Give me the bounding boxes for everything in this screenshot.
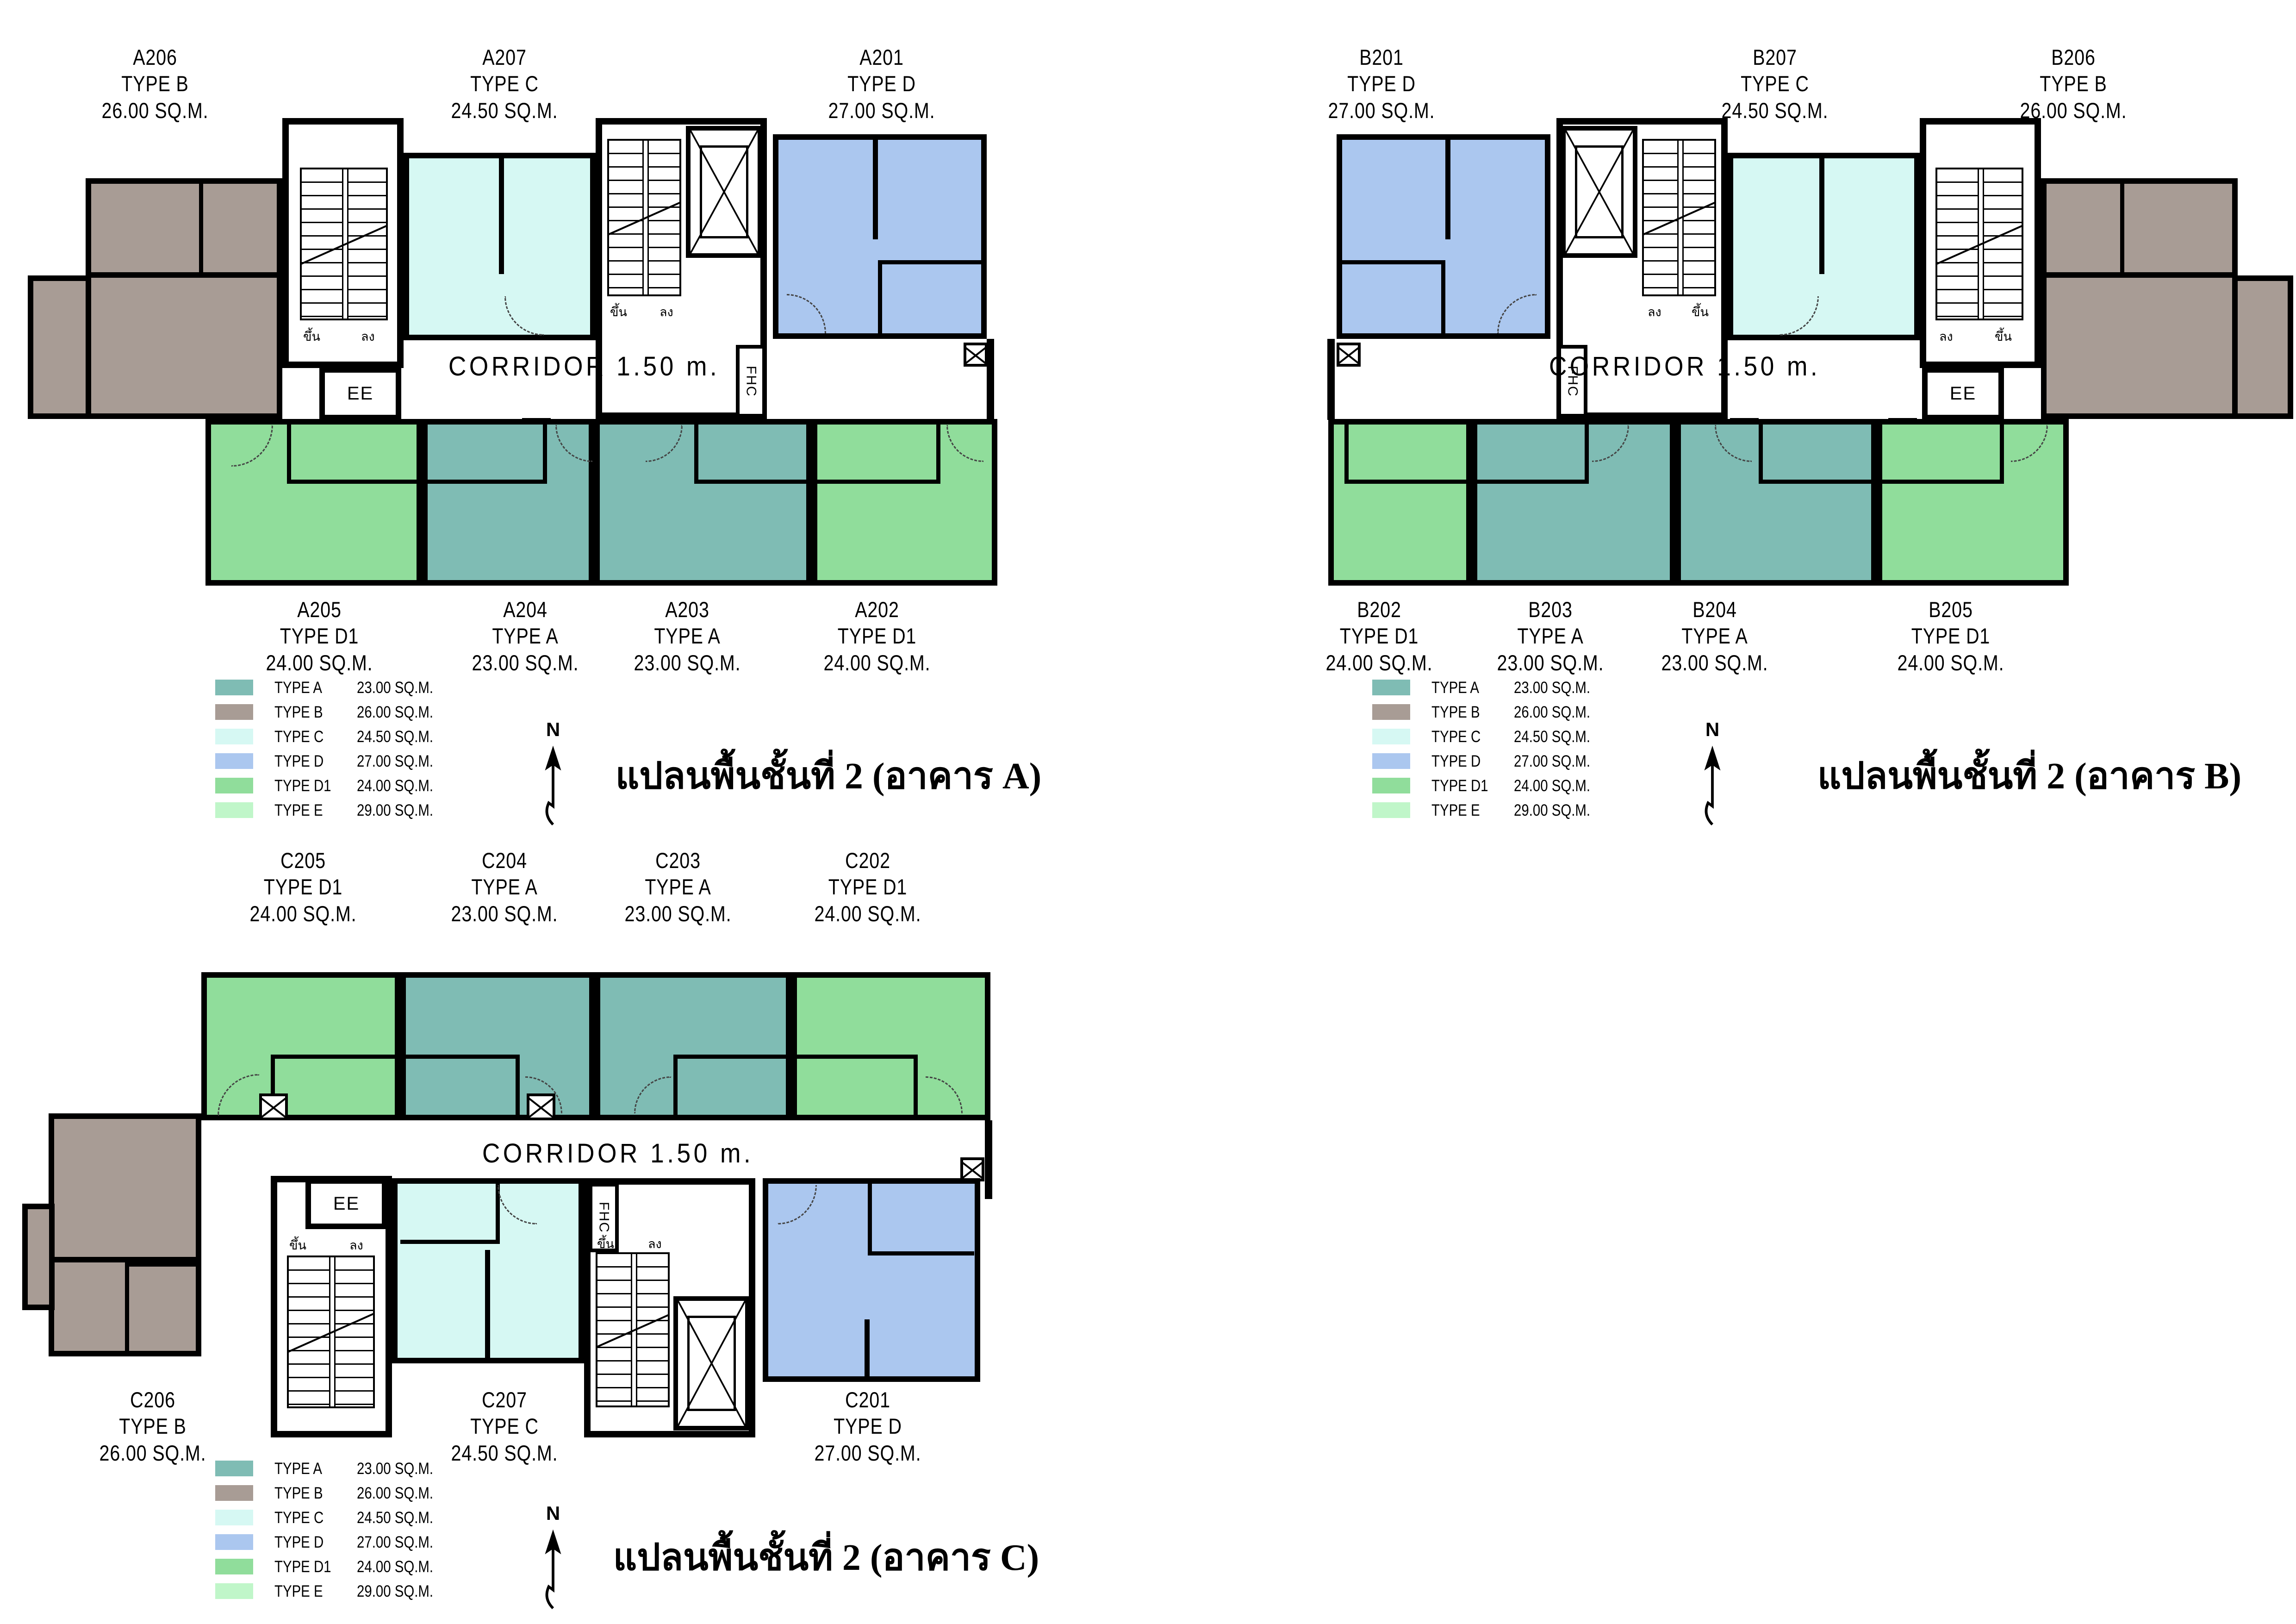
- elevator-car: [1575, 145, 1623, 238]
- unit-type: TYPE D: [796, 70, 967, 97]
- bathroom-A205: [287, 424, 418, 484]
- legend-swatch: [1372, 802, 1410, 818]
- bathroom-A201: [878, 260, 981, 333]
- unit-label: A202 TYPE D1 24.00 SQ.M.: [791, 596, 963, 676]
- bathroom-B202: [1344, 424, 1468, 484]
- corridor-label: CORRIDOR 1.50 m.: [448, 351, 720, 382]
- unit-type: TYPE D: [782, 1413, 953, 1439]
- legend-type: TYPE C: [274, 728, 360, 746]
- legend-area: 29.00 SQ.M.: [357, 801, 473, 820]
- legend-area: 24.50 SQ.M.: [357, 728, 473, 746]
- unit-number: C202: [782, 847, 953, 874]
- legend-area: 24.50 SQ.M.: [1514, 728, 1630, 746]
- elevator-ee-box: EE: [305, 1178, 387, 1229]
- legend-area: 29.00 SQ.M.: [1514, 801, 1630, 820]
- unit-type: TYPE D1: [782, 874, 953, 900]
- unit-number: C207: [419, 1387, 590, 1413]
- legend-swatch: [215, 729, 253, 744]
- unit-label: A206 TYPE B 26.00 SQ.M.: [69, 44, 241, 124]
- bathroom-C205: [271, 1055, 397, 1115]
- legend-area: 26.00 SQ.M.: [1514, 703, 1630, 722]
- unit-room-A206-wing: [28, 275, 91, 419]
- unit-type: TYPE C: [1689, 70, 1860, 97]
- legend-type: TYPE D1: [274, 1558, 360, 1576]
- legend-type: TYPE C: [274, 1509, 360, 1527]
- unit-label: A204 TYPE A 23.00 SQ.M.: [440, 596, 611, 676]
- unit-area: 27.00 SQ.M.: [782, 1440, 953, 1466]
- bathroom-C207: [400, 1184, 500, 1244]
- legend-type: TYPE D: [274, 1533, 360, 1552]
- unit-area: 24.00 SQ.M.: [218, 900, 389, 927]
- floor-plan-sheet: { "shared": { "corridor_label": "CORRIDO…: [0, 0, 2296, 1624]
- legend-swatch: [215, 1583, 253, 1599]
- unit-label: B206 TYPE B 26.00 SQ.M.: [1988, 44, 2159, 124]
- bathroom-A204: [426, 424, 547, 484]
- fire-hose-cabinet: FHC: [736, 345, 766, 418]
- stair-down-label: ลง: [349, 1235, 363, 1255]
- unit-area: 26.00 SQ.M.: [67, 1440, 238, 1466]
- legend-type: TYPE D1: [274, 777, 360, 795]
- stair-up-label: ขึ้น: [303, 326, 320, 346]
- north-arrow-icon: [1696, 742, 1729, 830]
- staircase: [1642, 139, 1716, 296]
- bathroom-C206: [125, 1262, 199, 1353]
- stair-up-label: ขึ้น: [289, 1235, 306, 1255]
- legend-area: 23.00 SQ.M.: [1514, 679, 1630, 697]
- bathroom-A203: [694, 424, 808, 484]
- unit-label: C207 TYPE C 24.50 SQ.M.: [419, 1387, 590, 1466]
- unit-type: TYPE A: [1465, 623, 1636, 649]
- elevator-label: EE: [1950, 383, 1976, 404]
- north-arrow-icon: [537, 1525, 569, 1613]
- bathroom-B203: [1475, 424, 1589, 484]
- legend-swatch: [215, 802, 253, 818]
- legend-swatch: [1372, 729, 1410, 744]
- elevator-shaft: [673, 1296, 750, 1430]
- unit-area: 24.00 SQ.M.: [782, 900, 953, 927]
- unit-label: B207 TYPE C 24.50 SQ.M.: [1689, 44, 1860, 124]
- unit-area: 23.00 SQ.M.: [602, 650, 773, 676]
- unit-type: TYPE B: [67, 1413, 238, 1439]
- north-label: N: [1694, 718, 1731, 741]
- corridor-end-wall: [985, 1120, 992, 1199]
- unit-area: 27.00 SQ.M.: [796, 97, 967, 124]
- unit-number: C206: [67, 1387, 238, 1413]
- elevator-ee-box: EE: [319, 367, 401, 420]
- legend-type: TYPE A: [274, 1460, 360, 1478]
- legend-swatch: [215, 778, 253, 793]
- north-label: N: [535, 1502, 572, 1524]
- legend-area: 29.00 SQ.M.: [357, 1582, 473, 1601]
- partition-wall: [53, 1257, 197, 1262]
- unit-label: C201 TYPE D 27.00 SQ.M.: [782, 1387, 953, 1466]
- unit-number: B201: [1296, 44, 1467, 70]
- unit-type: TYPE B: [1988, 70, 2159, 97]
- unit-number: C201: [782, 1387, 953, 1413]
- stair-down-label: ลง: [1939, 326, 1953, 346]
- bathroom-C201: [868, 1184, 974, 1255]
- service-shaft: [527, 1093, 555, 1120]
- corridor-label: CORRIDOR 1.50 m.: [482, 1138, 753, 1169]
- legend-area: 26.00 SQ.M.: [357, 703, 473, 722]
- partition-wall: [499, 158, 504, 274]
- unit-type: TYPE C: [419, 70, 590, 97]
- bathroom-B201: [1342, 260, 1445, 333]
- unit-area: 23.00 SQ.M.: [1629, 650, 1800, 676]
- unit-type: TYPE D1: [791, 623, 963, 649]
- unit-number: C205: [218, 847, 389, 874]
- elevator-shaft: [1561, 126, 1637, 258]
- unit-number: C203: [592, 847, 764, 874]
- legend-swatch: [215, 1510, 253, 1525]
- legend-type: TYPE B: [1431, 703, 1517, 722]
- staircase: [287, 1255, 375, 1408]
- unit-type: TYPE A: [602, 623, 773, 649]
- unit-area: 23.00 SQ.M.: [419, 900, 590, 927]
- unit-label: C205 TYPE D1 24.00 SQ.M.: [218, 847, 389, 927]
- service-shaft: [964, 343, 988, 367]
- partition-wall: [485, 1250, 490, 1359]
- elevator-ee-box: EE: [1922, 367, 2004, 420]
- legend-area: 24.50 SQ.M.: [357, 1509, 473, 1527]
- unit-area: 24.00 SQ.M.: [234, 650, 405, 676]
- legend-type: TYPE E: [274, 1582, 360, 1601]
- legend-area: 27.00 SQ.M.: [1514, 752, 1630, 771]
- stair-down-label: ลง: [1648, 302, 1661, 322]
- fhc-label: FHC: [743, 366, 759, 397]
- corridor-label: CORRIDOR 1.50 m.: [1549, 351, 1820, 382]
- north-arrow: N: [535, 718, 572, 832]
- unit-label: A201 TYPE D 27.00 SQ.M.: [796, 44, 967, 124]
- legend-swatch: [215, 680, 253, 695]
- bathroom-A202: [815, 424, 940, 484]
- legend-type: TYPE D1: [1431, 777, 1517, 795]
- stair-up-label: ขึ้น: [597, 1234, 614, 1254]
- legend-type: TYPE E: [274, 801, 360, 820]
- unit-number: A205: [234, 596, 405, 623]
- bathroom-C203: [673, 1055, 788, 1115]
- unit-area: 23.00 SQ.M.: [1465, 650, 1636, 676]
- legend-area: 23.00 SQ.M.: [357, 679, 473, 697]
- unit-number: B205: [1865, 596, 2036, 623]
- unit-label: A203 TYPE A 23.00 SQ.M.: [602, 596, 773, 676]
- stair-down-label: ลง: [660, 302, 673, 322]
- legend-area: 23.00 SQ.M.: [357, 1460, 473, 1478]
- bathroom-B206: [2045, 183, 2124, 278]
- north-arrow: N: [535, 1502, 572, 1616]
- bathroom-B205: [1880, 424, 2004, 484]
- staircase: [1935, 168, 2023, 320]
- unit-label: B205 TYPE D1 24.00 SQ.M.: [1865, 596, 2036, 676]
- unit-area: 23.00 SQ.M.: [440, 650, 611, 676]
- elevator-label: EE: [347, 383, 373, 404]
- unit-area: 24.00 SQ.M.: [791, 650, 963, 676]
- plan-b-caption: แปลนพื้นชั้นที่ 2 (อาคาร B): [1817, 746, 2241, 805]
- bathroom-B204: [1759, 424, 1873, 484]
- unit-type: TYPE D1: [1294, 623, 1465, 649]
- legend-area: 24.00 SQ.M.: [357, 777, 473, 795]
- elevator-shaft: [686, 126, 762, 258]
- stair-up-label: ขึ้น: [1995, 326, 2012, 346]
- bathroom-C204: [404, 1055, 520, 1115]
- bathroom-C202: [795, 1055, 918, 1115]
- unit-number: C204: [419, 847, 590, 874]
- plan-c-caption: แปลนพื้นชั้นที่ 2 (อาคาร C): [613, 1528, 1039, 1587]
- legend-area: 24.00 SQ.M.: [357, 1558, 473, 1576]
- unit-number: A201: [796, 44, 967, 70]
- elevator-label: EE: [333, 1193, 360, 1214]
- unit-label: A205 TYPE D1 24.00 SQ.M.: [234, 596, 405, 676]
- unit-room-B206-wing: [2232, 275, 2293, 419]
- unit-type: TYPE A: [440, 623, 611, 649]
- service-shaft: [259, 1093, 288, 1120]
- unit-type: TYPE D: [1296, 70, 1467, 97]
- unit-label: A207 TYPE C 24.50 SQ.M.: [419, 44, 590, 124]
- legend-swatch: [1372, 704, 1410, 720]
- unit-room-C206-wing: [22, 1204, 55, 1310]
- legend-type: TYPE C: [1431, 728, 1517, 746]
- unit-area: 23.00 SQ.M.: [592, 900, 764, 927]
- unit-label: C202 TYPE D1 24.00 SQ.M.: [782, 847, 953, 927]
- legend-swatch: [215, 1461, 253, 1476]
- unit-type: TYPE D1: [234, 623, 405, 649]
- legend-swatch: [215, 704, 253, 720]
- corridor-end-wall: [1327, 339, 1335, 420]
- unit-number: B202: [1294, 596, 1465, 623]
- unit-number: A202: [791, 596, 963, 623]
- stair-down-label: ลง: [361, 326, 375, 346]
- partition-wall: [865, 1319, 870, 1377]
- legend-swatch: [215, 1534, 253, 1550]
- unit-label: C206 TYPE B 26.00 SQ.M.: [67, 1387, 238, 1466]
- unit-number: B206: [1988, 44, 2159, 70]
- unit-number: A207: [419, 44, 590, 70]
- legend-swatch: [1372, 680, 1410, 695]
- legend-area: 27.00 SQ.M.: [357, 752, 473, 771]
- unit-type: TYPE C: [419, 1413, 590, 1439]
- unit-number: B207: [1689, 44, 1860, 70]
- service-shaft: [1337, 343, 1361, 367]
- unit-number: A204: [440, 596, 611, 623]
- staircase: [300, 168, 388, 320]
- legend-type: TYPE E: [1431, 801, 1517, 820]
- legend-area: 26.00 SQ.M.: [357, 1484, 473, 1503]
- unit-area: 24.50 SQ.M.: [419, 97, 590, 124]
- unit-area: 27.00 SQ.M.: [1296, 97, 1467, 124]
- unit-number: A203: [602, 596, 773, 623]
- legend-type: TYPE B: [274, 703, 360, 722]
- legend-swatch: [215, 1485, 253, 1501]
- unit-type: TYPE A: [592, 874, 764, 900]
- legend-type: TYPE D: [274, 752, 360, 771]
- north-label: N: [535, 718, 572, 741]
- legend-type: TYPE A: [1431, 679, 1517, 697]
- partition-wall: [1819, 158, 1824, 274]
- legend-area: 27.00 SQ.M.: [357, 1533, 473, 1552]
- unit-label: C203 TYPE A 23.00 SQ.M.: [592, 847, 764, 927]
- legend-swatch: [1372, 778, 1410, 793]
- unit-label: B203 TYPE A 23.00 SQ.M.: [1465, 596, 1636, 676]
- corridor-end-wall: [987, 339, 994, 420]
- legend-type: TYPE D: [1431, 752, 1517, 771]
- unit-type: TYPE B: [69, 70, 241, 97]
- legend-swatch: [1372, 753, 1410, 769]
- partition-wall: [873, 140, 878, 239]
- stair-up-label: ขึ้น: [610, 302, 627, 322]
- unit-area: 26.00 SQ.M.: [69, 97, 241, 124]
- legend-type: TYPE A: [274, 679, 360, 697]
- unit-type: TYPE A: [1629, 623, 1800, 649]
- unit-type: TYPE D1: [218, 874, 389, 900]
- staircase: [607, 139, 681, 296]
- north-arrow: N: [1694, 718, 1731, 832]
- unit-label: C204 TYPE A 23.00 SQ.M.: [419, 847, 590, 927]
- unit-label: B204 TYPE A 23.00 SQ.M.: [1629, 596, 1800, 676]
- unit-type: TYPE D1: [1865, 623, 2036, 649]
- legend-swatch: [215, 1559, 253, 1574]
- legend-type: TYPE B: [274, 1484, 360, 1503]
- legend-area: 24.00 SQ.M.: [1514, 777, 1630, 795]
- unit-number: A206: [69, 44, 241, 70]
- unit-area: 24.00 SQ.M.: [1294, 650, 1465, 676]
- unit-label: B202 TYPE D1 24.00 SQ.M.: [1294, 596, 1465, 676]
- unit-number: B203: [1465, 596, 1636, 623]
- bathroom-A206: [199, 183, 279, 278]
- plan-a-caption: แปลนพื้นชั้นที่ 2 (อาคาร A): [616, 746, 1042, 805]
- elevator-car: [687, 1316, 735, 1411]
- stair-up-label: ขึ้น: [1692, 302, 1709, 322]
- unit-number: B204: [1629, 596, 1800, 623]
- unit-type: TYPE A: [419, 874, 590, 900]
- elevator-car: [700, 145, 748, 238]
- partition-wall: [1445, 140, 1450, 239]
- staircase: [596, 1252, 670, 1407]
- legend-swatch: [215, 753, 253, 769]
- north-arrow-icon: [537, 742, 569, 830]
- unit-label: B201 TYPE D 27.00 SQ.M.: [1296, 44, 1467, 124]
- stair-down-label: ลง: [648, 1234, 662, 1254]
- unit-area: 24.00 SQ.M.: [1865, 650, 2036, 676]
- fhc-label: FHC: [596, 1202, 612, 1233]
